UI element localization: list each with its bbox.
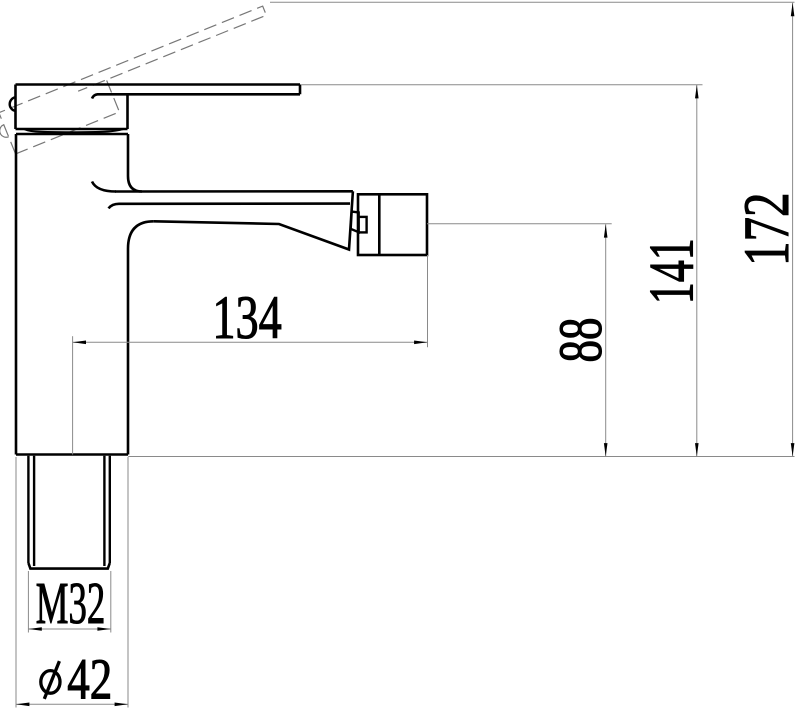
- svg-text:172: 172: [731, 193, 800, 267]
- svg-text:88: 88: [547, 318, 615, 363]
- svg-text:42: 42: [67, 646, 112, 711]
- svg-text:M32: M32: [36, 570, 106, 636]
- svg-text:141: 141: [635, 238, 706, 304]
- svg-text:134: 134: [212, 284, 281, 352]
